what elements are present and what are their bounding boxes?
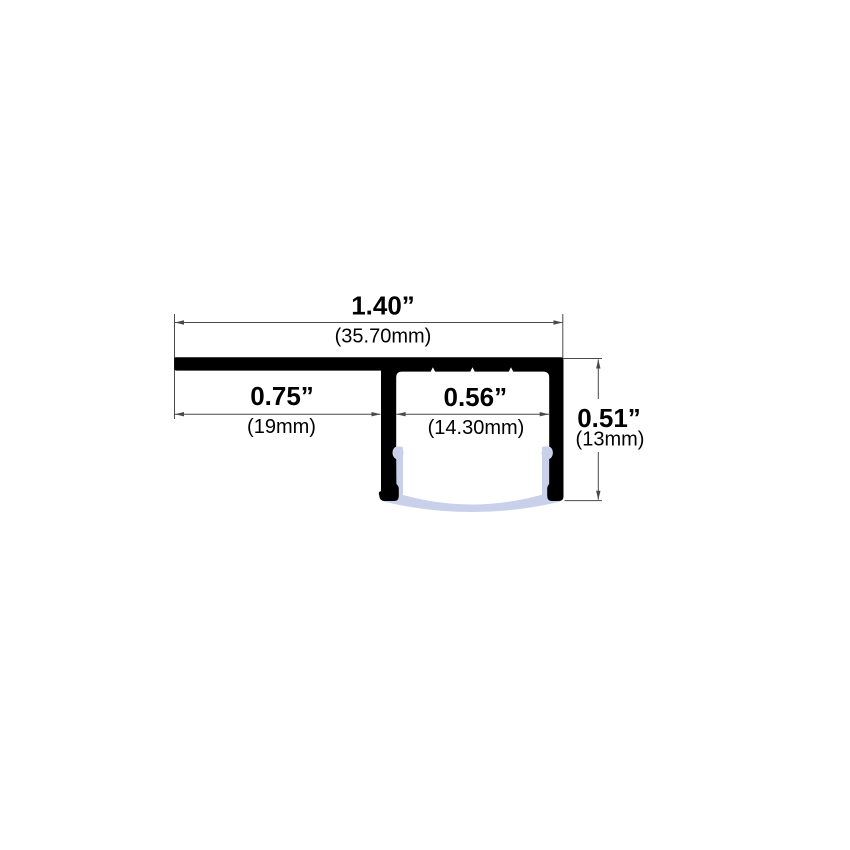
svg-text:0.75”: 0.75” <box>250 381 314 411</box>
svg-text:(35.70mm): (35.70mm) <box>335 326 432 348</box>
svg-text:1.40”: 1.40” <box>351 291 415 321</box>
svg-text:(14.30mm): (14.30mm) <box>428 417 525 439</box>
svg-text:0.56”: 0.56” <box>443 382 507 412</box>
svg-text:(19mm): (19mm) <box>247 416 316 438</box>
svg-text:(13mm): (13mm) <box>576 429 645 451</box>
